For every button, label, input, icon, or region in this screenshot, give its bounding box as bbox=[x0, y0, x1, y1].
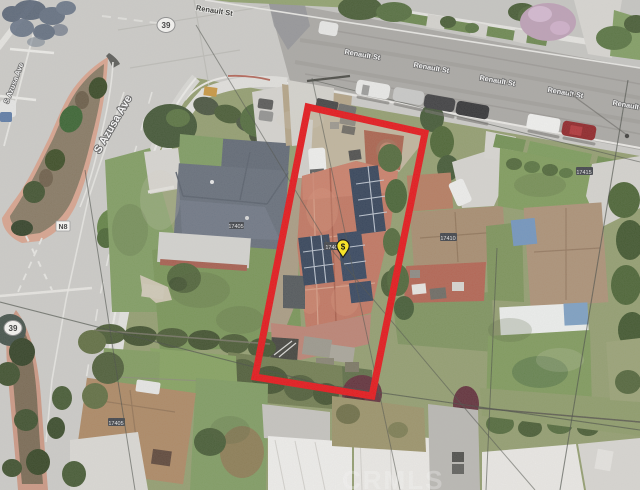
svg-text:$: $ bbox=[341, 243, 346, 252]
